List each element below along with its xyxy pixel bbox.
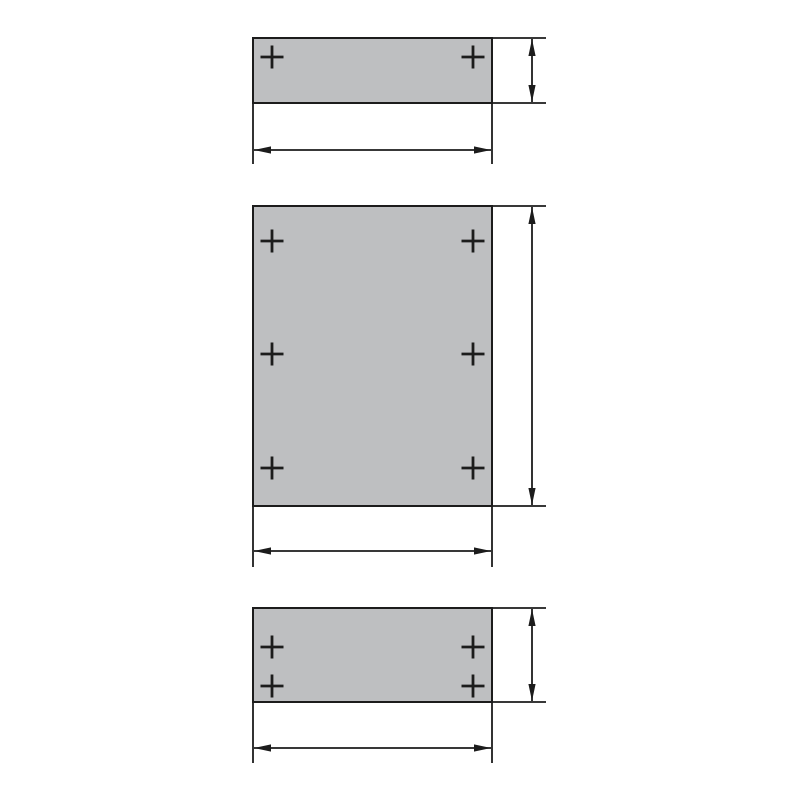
vertical-dimension [528,39,535,102]
panel-rect [253,608,492,702]
dimension-arrowhead-down [528,488,535,505]
dimension-arrowhead-right [474,146,491,153]
middle-panel [253,206,546,567]
horizontal-dimension [254,744,491,751]
dimension-arrowhead-down [528,85,535,102]
dimension-arrowhead-right [474,547,491,554]
dimension-arrowhead-left [254,547,271,554]
vertical-dimension [528,609,535,701]
drawing-canvas [0,0,800,800]
dimension-arrowhead-up [528,39,535,56]
panel-rect [253,38,492,103]
horizontal-dimension [254,146,491,153]
horizontal-dimension [254,547,491,554]
top-panel [253,38,546,164]
dimension-arrowhead-left [254,744,271,751]
dimension-arrowhead-right [474,744,491,751]
dimension-arrowhead-left [254,146,271,153]
dimension-arrowhead-up [528,207,535,224]
dimension-arrowhead-up [528,609,535,626]
panel-rect [253,206,492,506]
vertical-dimension [528,207,535,505]
technical-drawing [0,0,800,800]
bottom-panel [253,608,546,763]
dimension-arrowhead-down [528,684,535,701]
